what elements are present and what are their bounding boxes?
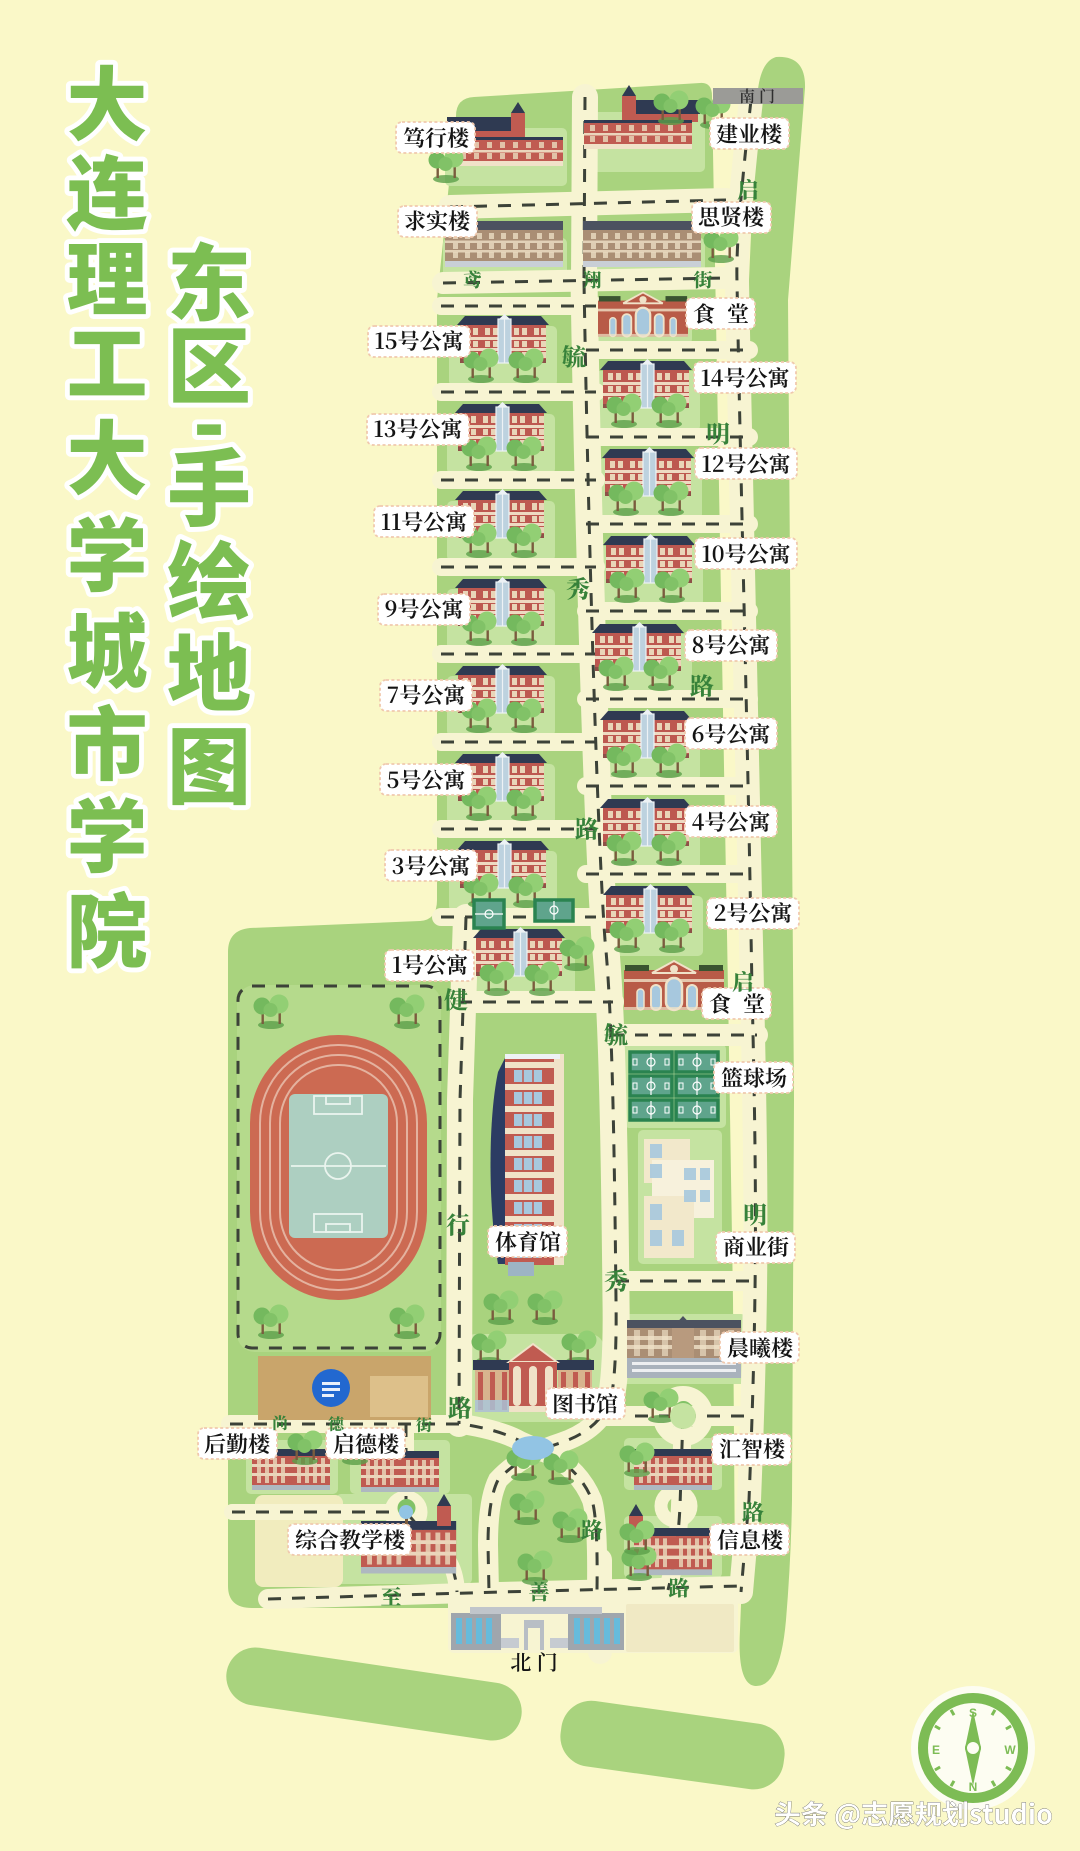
svg-text:W: W [1004, 1743, 1016, 1757]
svg-text:E: E [932, 1743, 940, 1757]
